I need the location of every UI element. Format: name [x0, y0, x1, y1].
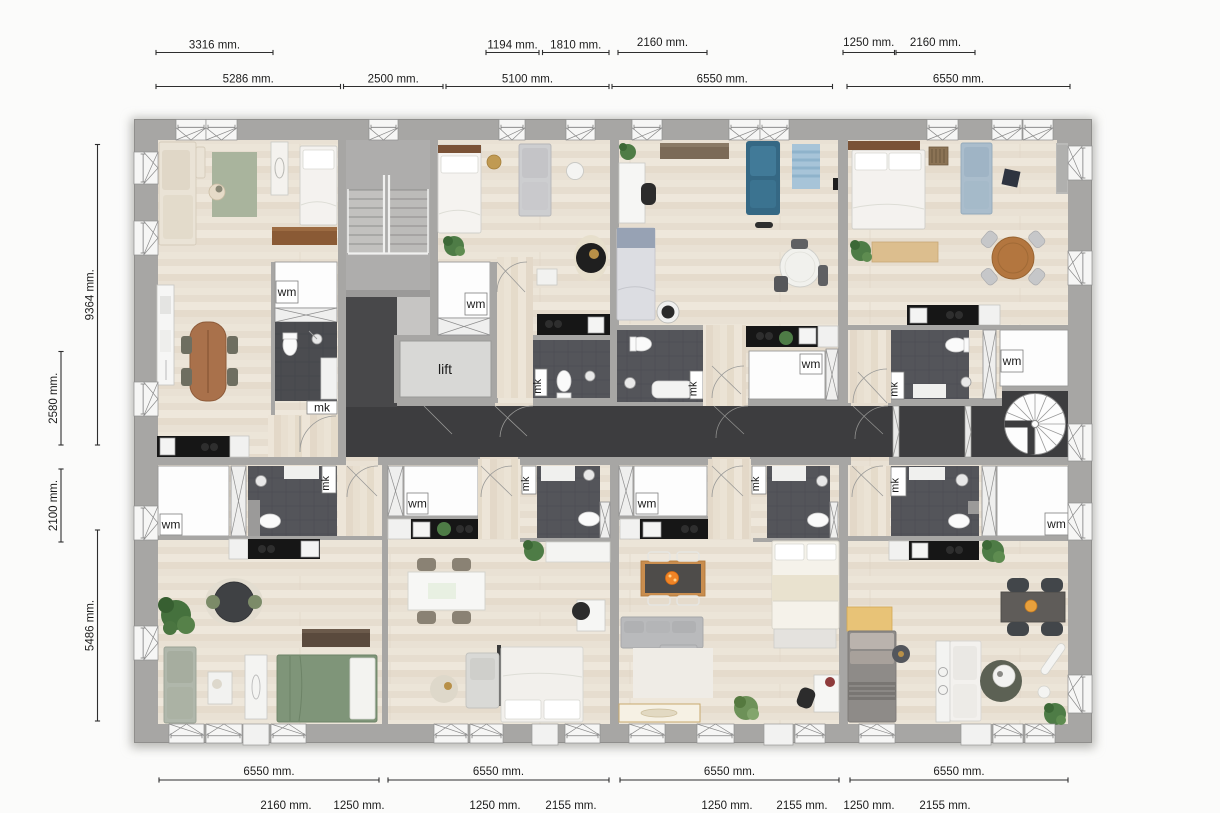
svg-text:mk: mk — [320, 476, 332, 491]
svg-text:wm: wm — [1046, 517, 1066, 531]
svg-text:6550 mm.: 6550 mm. — [697, 74, 748, 86]
svg-text:6550 mm.: 6550 mm. — [933, 766, 984, 778]
svg-text:wm: wm — [161, 518, 181, 532]
svg-text:mk: mk — [532, 379, 544, 394]
svg-text:6550 mm.: 6550 mm. — [704, 766, 755, 778]
svg-text:2160 mm.: 2160 mm. — [910, 37, 961, 49]
svg-text:wm: wm — [407, 497, 427, 511]
svg-text:1250 mm.: 1250 mm. — [701, 800, 752, 812]
svg-text:2155 mm.: 2155 mm. — [776, 800, 827, 812]
svg-text:2155 mm.: 2155 mm. — [919, 800, 970, 812]
svg-text:6550 mm.: 6550 mm. — [473, 766, 524, 778]
svg-text:wm: wm — [637, 497, 657, 511]
svg-text:2580 mm.: 2580 mm. — [48, 373, 60, 424]
svg-text:1250 mm.: 1250 mm. — [469, 800, 520, 812]
svg-text:wm: wm — [466, 297, 486, 311]
svg-text:3316 mm.: 3316 mm. — [189, 40, 240, 52]
svg-text:2500 mm.: 2500 mm. — [368, 74, 419, 86]
svg-text:1810 mm.: 1810 mm. — [550, 40, 601, 52]
svg-text:6550 mm.: 6550 mm. — [933, 74, 984, 86]
svg-text:mk: mk — [688, 381, 700, 396]
svg-text:2160 mm.: 2160 mm. — [637, 37, 688, 49]
svg-text:2160 mm.: 2160 mm. — [260, 800, 311, 812]
svg-text:mk: mk — [314, 401, 331, 415]
svg-text:lift: lift — [438, 361, 452, 377]
svg-text:mk: mk — [750, 476, 762, 491]
svg-text:2155 mm.: 2155 mm. — [545, 800, 596, 812]
svg-text:6550 mm.: 6550 mm. — [243, 766, 294, 778]
svg-text:5486 mm.: 5486 mm. — [85, 600, 97, 651]
svg-text:1250 mm.: 1250 mm. — [333, 800, 384, 812]
svg-text:5100 mm.: 5100 mm. — [502, 74, 553, 86]
svg-text:mk: mk — [520, 476, 532, 491]
svg-text:2100 mm.: 2100 mm. — [48, 480, 60, 531]
svg-text:1250 mm.: 1250 mm. — [843, 37, 894, 49]
svg-text:1250 mm.: 1250 mm. — [843, 800, 894, 812]
svg-text:5286 mm.: 5286 mm. — [223, 74, 274, 86]
svg-text:mk: mk — [890, 478, 902, 493]
svg-text:wm: wm — [801, 357, 821, 371]
svg-text:wm: wm — [1002, 354, 1022, 368]
svg-text:wm: wm — [277, 285, 297, 299]
svg-text:1194 mm.: 1194 mm. — [487, 40, 537, 52]
svg-text:9364 mm.: 9364 mm. — [85, 269, 97, 320]
